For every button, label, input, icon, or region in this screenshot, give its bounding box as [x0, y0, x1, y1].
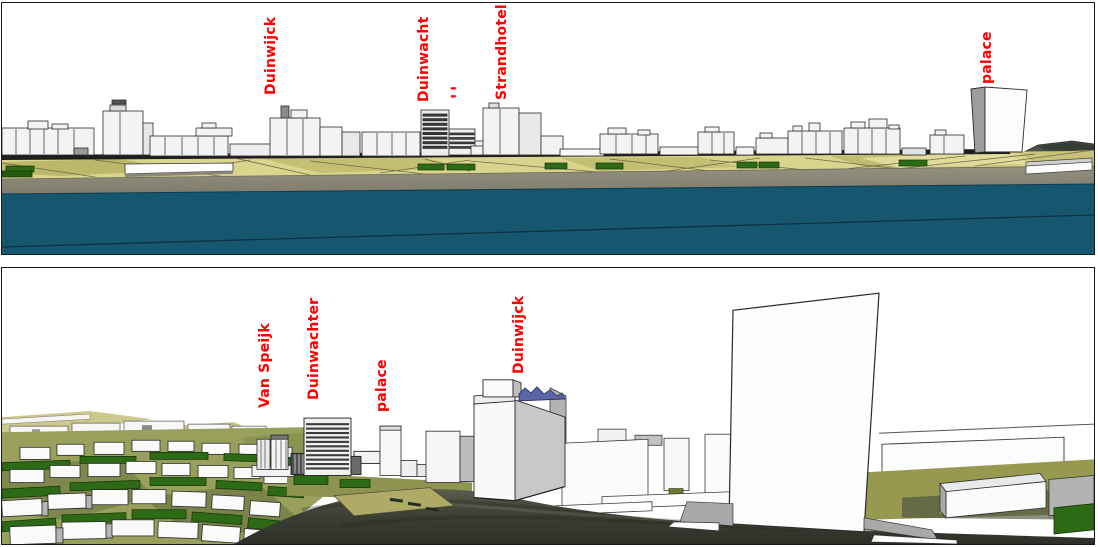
foreground-slab-tower: [729, 293, 879, 532]
top-elevation-scene: [2, 3, 1094, 254]
van-speijk-building: [252, 435, 294, 476]
top-elevation-panel: [1, 2, 1095, 255]
bottom-perspective-panel: [1, 267, 1095, 545]
model-views-page: Duinwijck Duinwacht - - Strandhotel pala…: [0, 0, 1098, 547]
sea-water: [2, 184, 1094, 254]
bottom-perspective-scene: [2, 268, 1094, 544]
duinwijck-building-bottom: [474, 380, 565, 501]
palace-tower-top: [971, 87, 1027, 153]
